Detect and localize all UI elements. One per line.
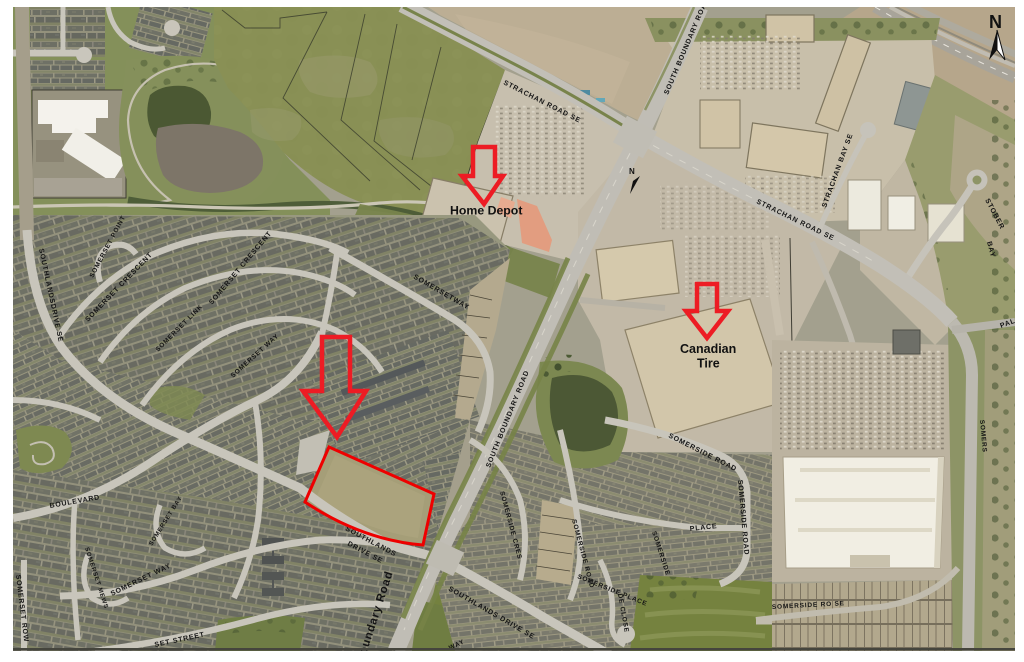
svg-text:N: N: [629, 167, 635, 176]
svg-text:Home Depot: Home Depot: [450, 204, 522, 218]
svg-text:Tire: Tire: [697, 357, 720, 371]
svg-text:N: N: [989, 12, 1002, 32]
svg-text:Canadian: Canadian: [680, 342, 736, 356]
